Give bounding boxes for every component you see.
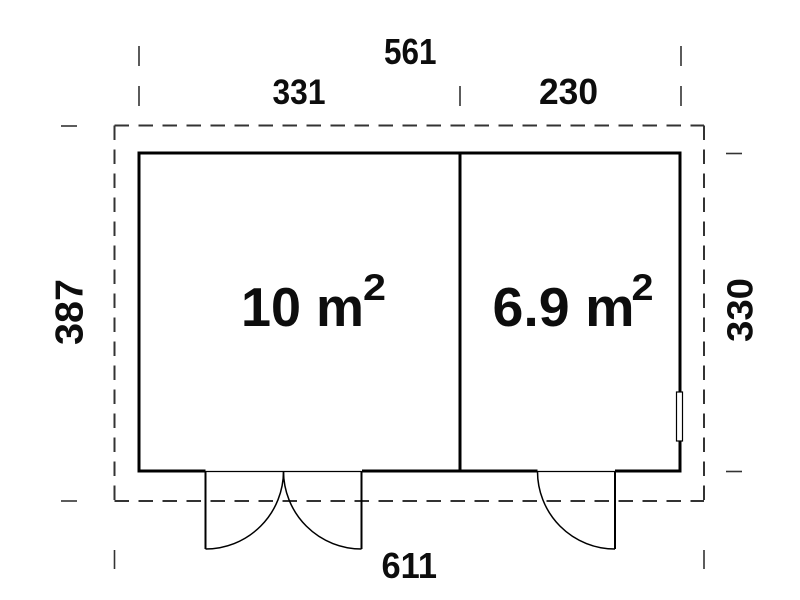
svg-text:2: 2 — [632, 267, 654, 308]
svg-text:330: 330 — [719, 278, 760, 342]
svg-text:387: 387 — [49, 279, 92, 345]
svg-text:561: 561 — [384, 31, 437, 72]
svg-text:611: 611 — [382, 545, 438, 586]
svg-text:10 m: 10 m — [241, 276, 364, 338]
svg-text:331: 331 — [273, 72, 326, 112]
svg-text:2: 2 — [363, 267, 386, 308]
svg-text:230: 230 — [539, 71, 598, 112]
svg-text:6.9 m: 6.9 m — [493, 276, 635, 338]
